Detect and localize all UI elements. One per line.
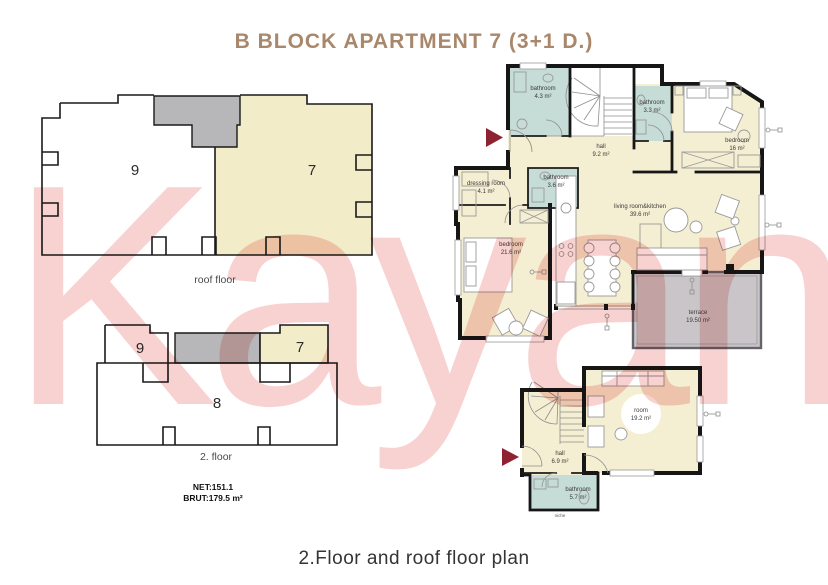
roof-plan-caption: roof floor	[194, 274, 236, 286]
label-bathroom1-name: bathroom	[530, 86, 555, 92]
label-bedroom2-name: bedroom	[499, 242, 523, 248]
label-bedroom2-area: 21.6 m²	[501, 250, 521, 256]
label-roofroom-name: room	[634, 408, 648, 414]
floor-plan-sheet: B BLOCK APARTMENT 7 (3+1 D.) 9 7 roof fl…	[0, 0, 828, 585]
label-bathroom2-area: 3.3 m²	[643, 108, 660, 114]
entrance-arrow-roof	[502, 448, 519, 466]
dimension-mark-roof	[704, 412, 720, 416]
label-bathroom3-area: 3.6 m²	[547, 183, 564, 189]
label-bathroom2-name: bathroom	[639, 100, 664, 106]
main-floor-plan: bathroom 4.3 m² bathroom 3.3 m² bedroom …	[453, 63, 782, 348]
plan-canvas: 9 7 roof floor 9 7 8 2. floor NET:151.1 …	[0, 0, 828, 585]
second-floor-key-plan: 9 7 8 2. floor	[97, 325, 337, 463]
brut-area-text: BRUT:179.5 m²	[183, 493, 243, 503]
entrance-arrow-main	[486, 128, 503, 147]
label-hall-area: 9.2 m²	[592, 152, 609, 158]
label-dressing-name: dressing room	[467, 181, 505, 187]
label-bathroom3-name: bathroom	[543, 175, 568, 181]
label-hall-name: hall	[596, 144, 605, 150]
second-plan-unit-8: 8	[213, 395, 221, 412]
label-bedroom1-name: bedroom	[725, 138, 749, 144]
label-niche: niche	[555, 513, 566, 518]
kitchen-counter	[556, 176, 576, 306]
label-living-name: living room&kitchen	[614, 204, 666, 210]
second-plan-unit-9: 9	[136, 340, 144, 357]
roof-plan-unit-7: 7	[308, 162, 316, 179]
label-bedroom1-area: 16 m²	[729, 146, 744, 152]
label-roofbath-area: 5.7 m²	[569, 495, 586, 501]
label-dressing-area: 4.1 m²	[477, 189, 494, 195]
label-roofhall-name: hall	[555, 451, 564, 457]
label-terrace-name: terrace	[689, 310, 708, 316]
label-terrace-area: 19.50 m²	[686, 318, 710, 324]
second-plan-unit-7: 7	[296, 339, 304, 356]
label-roofbath-name: bathroom	[565, 487, 590, 493]
roof-detail-plan: room 19.2 m² hall 6.9 m² bathroom 5.7 m²…	[502, 368, 720, 518]
label-roofhall-area: 6.9 m²	[551, 459, 568, 465]
label-roofroom-area: 19.2 m²	[631, 416, 651, 422]
label-bathroom1-area: 4.3 m²	[534, 94, 551, 100]
roof-floor-key-plan: 9 7 roof floor	[42, 95, 372, 286]
sheet-caption: 2.Floor and roof floor plan	[0, 548, 828, 570]
label-living-area: 39.6 m²	[630, 212, 650, 218]
net-area-text: NET:151.1	[193, 482, 233, 492]
page-title: B BLOCK APARTMENT 7 (3+1 D.)	[0, 30, 828, 54]
second-plan-caption: 2. floor	[200, 451, 233, 463]
roof-plan-unit-9: 9	[131, 162, 139, 179]
